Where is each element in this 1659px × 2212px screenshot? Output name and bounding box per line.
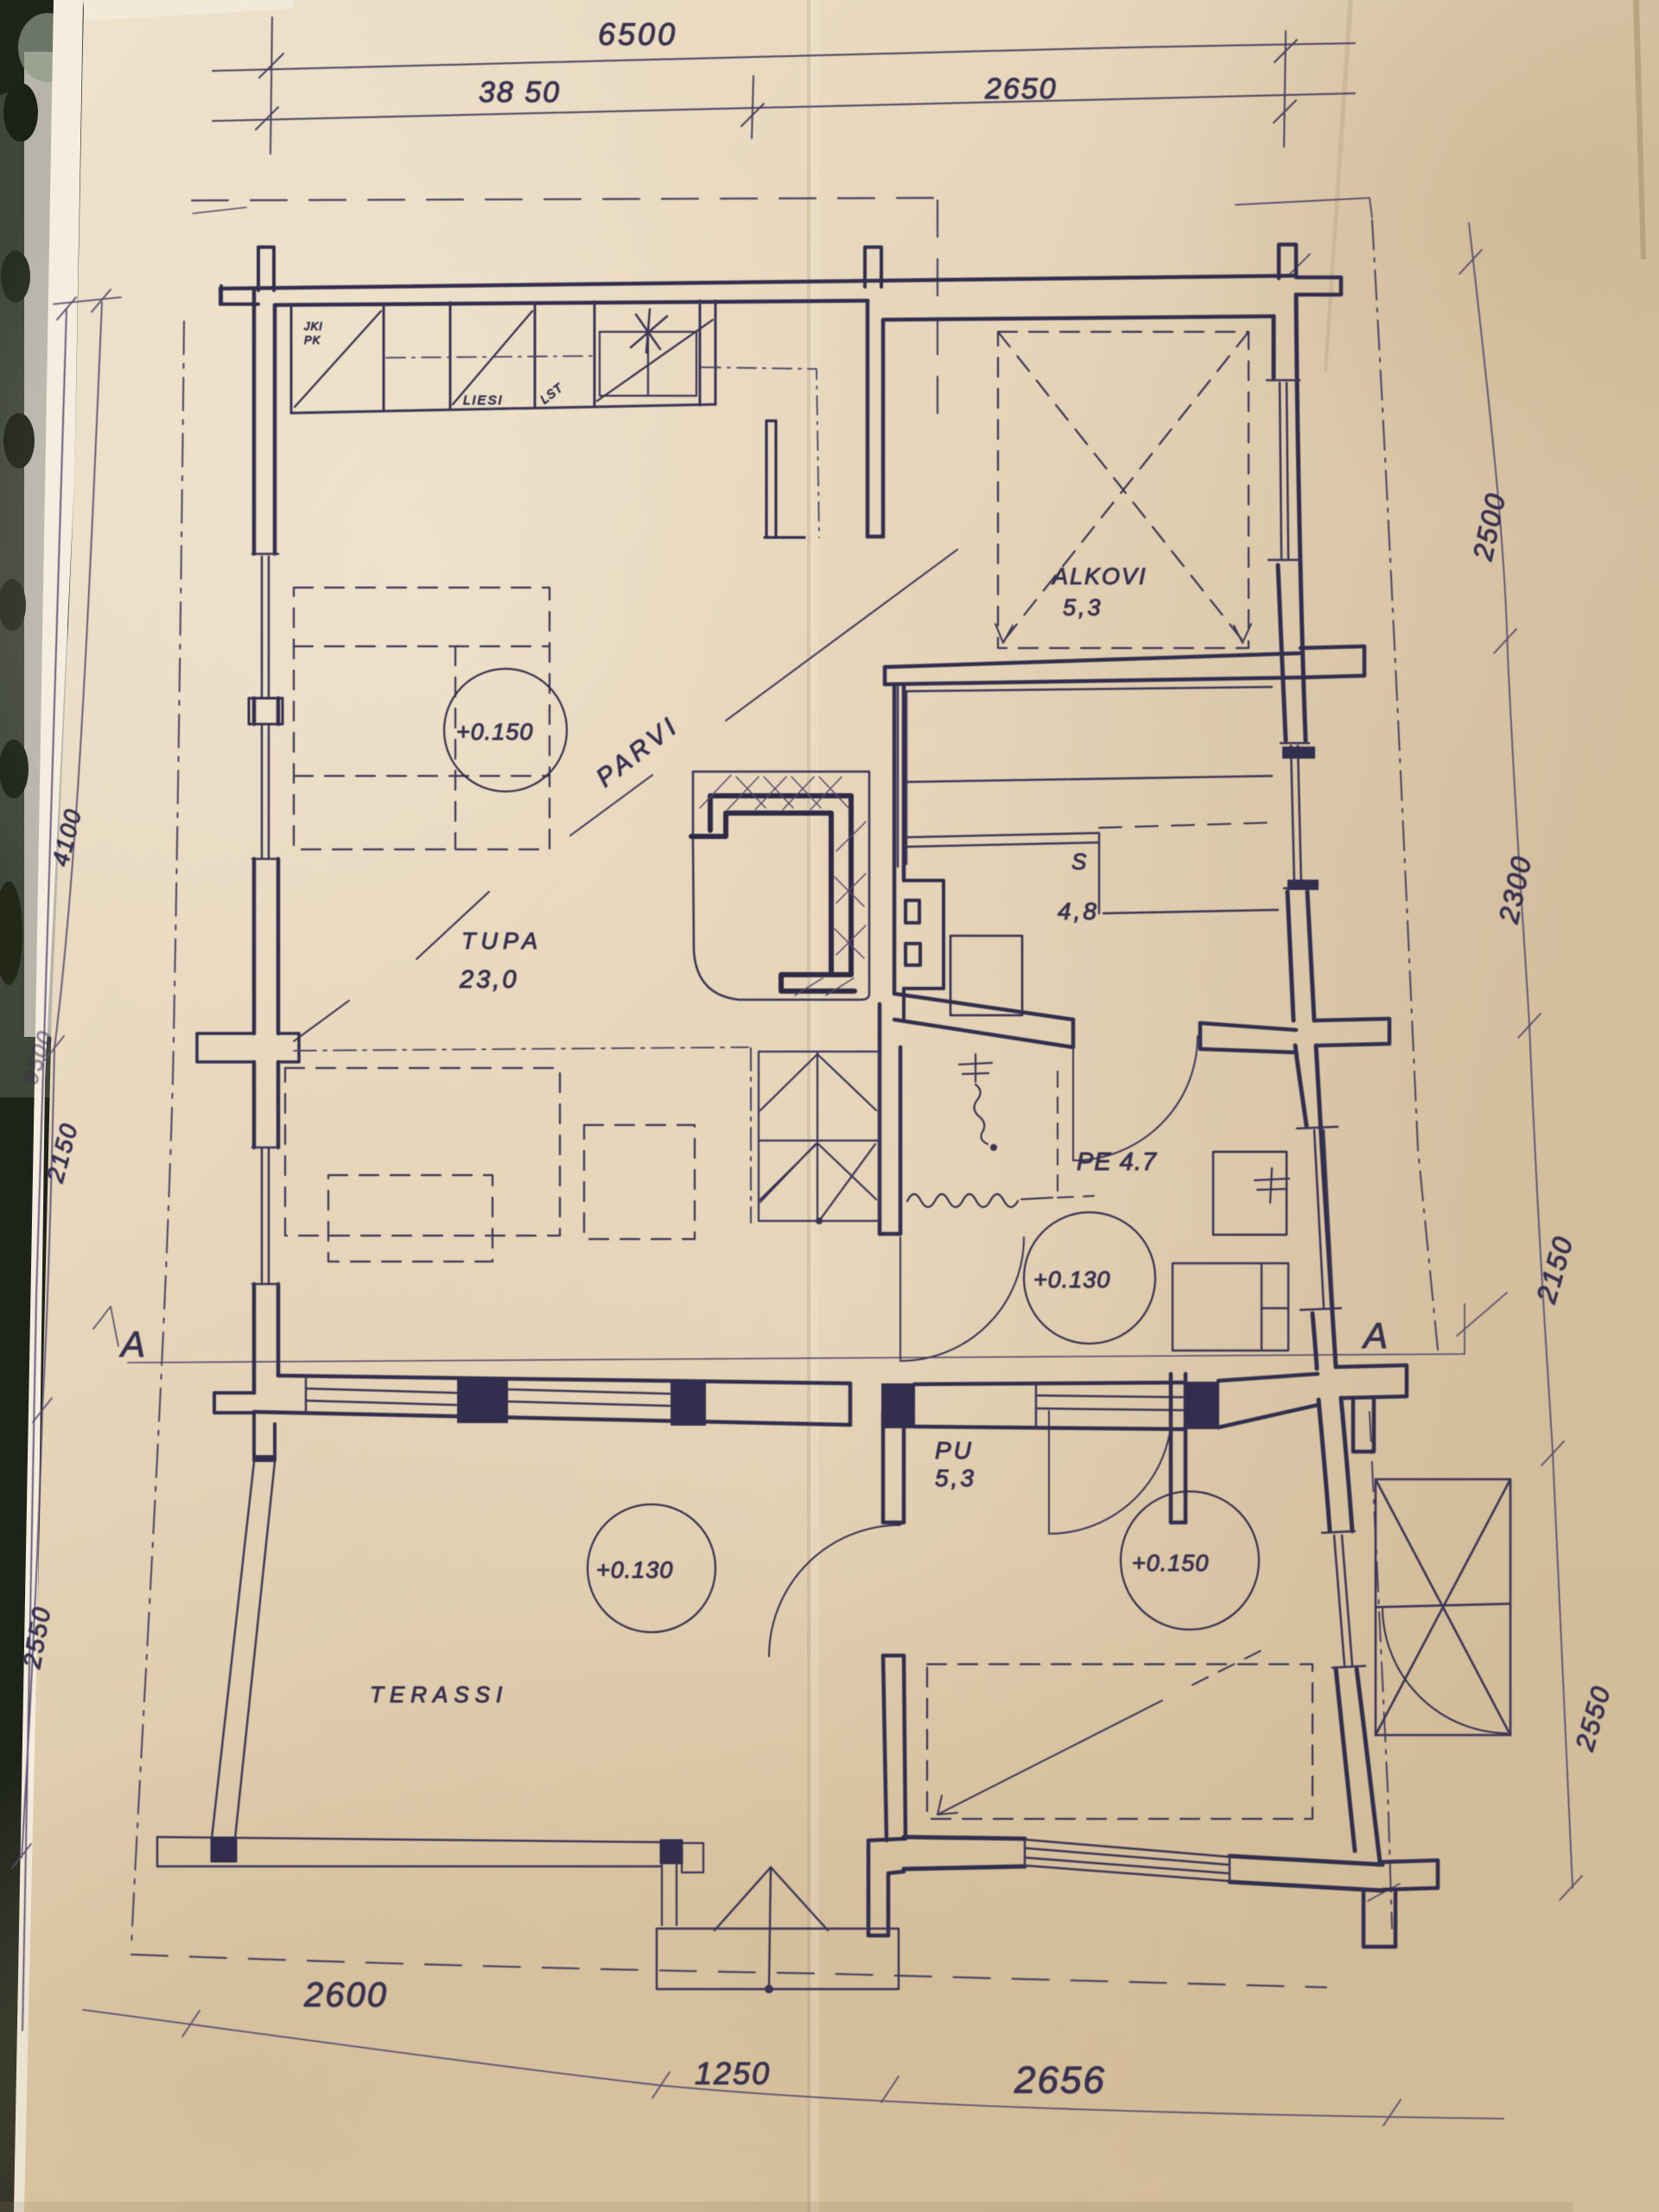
svg-text:38 50: 38 50 [479,76,561,109]
svg-text:TUPA: TUPA [461,928,543,954]
svg-text:+0.130: +0.130 [596,1557,673,1583]
svg-text:2656: 2656 [1014,2059,1106,2101]
svg-text:5,3: 5,3 [1063,594,1103,620]
svg-text:TERASSI: TERASSI [370,1681,508,1707]
svg-text:+0.150: +0.150 [1132,1550,1209,1576]
svg-text:A: A [1361,1315,1388,1356]
svg-text:PK: PK [304,334,321,346]
svg-text:4,8: 4,8 [1058,898,1099,925]
svg-text:S: S [1071,849,1088,874]
svg-text:5,3: 5,3 [935,1465,976,1491]
svg-text:A: A [118,1324,145,1364]
svg-text:ALKOVI: ALKOVI [1051,563,1147,589]
svg-text:+0.130: +0.130 [1033,1267,1110,1293]
svg-text:2600: 2600 [303,1976,388,2014]
svg-text:PE 4.7: PE 4.7 [1077,1148,1158,1176]
svg-text:PU: PU [935,1437,974,1464]
svg-text:23,0: 23,0 [459,966,518,994]
svg-text:JKI: JKI [303,320,323,333]
svg-text:LIESI: LIESI [463,393,504,408]
svg-text:+0.150: +0.150 [456,719,533,745]
svg-text:2650: 2650 [984,73,1058,105]
svg-text:1250: 1250 [695,2056,771,2091]
svg-text:6500: 6500 [598,16,677,52]
